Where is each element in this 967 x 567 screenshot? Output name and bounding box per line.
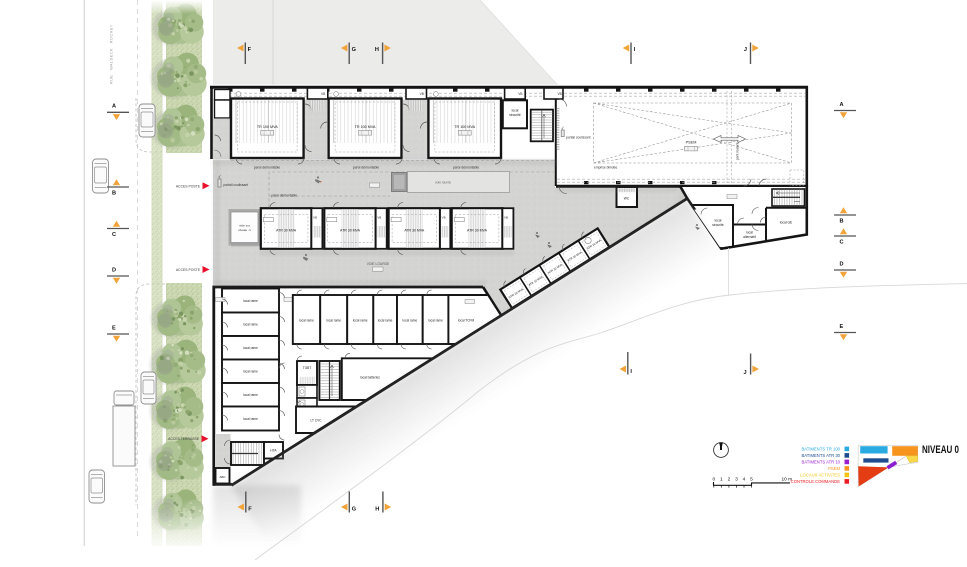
svg-text:ATR 30 MVA: ATR 30 MVA <box>340 229 361 233</box>
svg-text:WC: WC <box>624 197 630 201</box>
svg-text:local rame: local rame <box>428 319 443 323</box>
svg-text:niveau -1: niveau -1 <box>238 228 251 232</box>
svg-text:3: 3 <box>735 476 738 482</box>
svg-text:D: D <box>840 261 844 267</box>
svg-text:E: E <box>112 325 116 331</box>
svg-text:0: 0 <box>712 476 715 482</box>
svg-text:vide sur: vide sur <box>239 224 250 228</box>
svg-text:ATR 30 MVA: ATR 30 MVA <box>404 229 425 233</box>
svg-text:B: B <box>112 191 116 197</box>
svg-text:local rame: local rame <box>243 299 258 303</box>
svg-text:C: C <box>840 240 844 246</box>
svg-text:local rame: local rame <box>243 393 258 397</box>
svg-text:TR 100 MVA: TR 100 MVA <box>257 125 278 129</box>
svg-text:VB: VB <box>313 216 317 220</box>
svg-text:local rame: local rame <box>326 319 341 323</box>
svg-text:ACCES TERRASSE: ACCES TERRASSE <box>168 437 200 441</box>
svg-text:VOIE LOURDE: VOIE LOURDE <box>367 262 390 266</box>
svg-text:BATIMENTS ATR 30: BATIMENTS ATR 30 <box>802 453 841 458</box>
svg-text:B: B <box>840 219 844 225</box>
svg-text:local rame: local rame <box>243 417 258 421</box>
svg-text:PSEM: PSEM <box>686 141 697 145</box>
svg-text:paroi démontable: paroi démontable <box>353 166 379 170</box>
svg-text:H: H <box>375 47 379 53</box>
svg-text:LT CVC: LT CVC <box>310 419 322 423</box>
svg-text:alternatif: alternatif <box>743 235 756 239</box>
svg-text:VB: VB <box>442 216 446 220</box>
svg-text:TR 100 MVA: TR 100 MVA <box>355 125 376 129</box>
svg-text:local rame: local rame <box>243 346 258 350</box>
svg-text:sécurité: sécurité <box>509 113 521 117</box>
svg-text:G: G <box>352 47 356 53</box>
svg-text:A: A <box>112 104 116 110</box>
svg-text:portail coulissant: portail coulissant <box>224 183 249 187</box>
svg-text:HTA: HTA <box>270 449 277 453</box>
svg-text:local TCFM: local TCFM <box>458 319 475 323</box>
svg-text:local rame: local rame <box>403 319 418 323</box>
svg-text:TR 100 MVA: TR 100 MVA <box>454 125 475 129</box>
svg-text:ATR 30 MVA: ATR 30 MVA <box>467 229 488 233</box>
svg-text:1: 1 <box>720 476 723 482</box>
svg-text:5: 5 <box>750 476 753 482</box>
svg-text:BATIMENTS ATR 10: BATIMENTS ATR 10 <box>802 460 841 465</box>
svg-text:local rame: local rame <box>243 323 258 327</box>
svg-text:VB: VB <box>321 92 325 96</box>
svg-text:C: C <box>112 232 116 238</box>
svg-text:paroi démontable: paroi démontable <box>272 193 298 197</box>
svg-text:2: 2 <box>728 476 731 482</box>
svg-text:local: local <box>512 109 519 113</box>
svg-text:local rame: local rame <box>299 319 314 323</box>
svg-text:E: E <box>840 324 844 330</box>
svg-text:VB: VB <box>420 92 424 96</box>
svg-text:4: 4 <box>743 476 746 482</box>
svg-text:VB: VB <box>518 92 522 96</box>
svg-text:VB: VB <box>377 216 381 220</box>
svg-text:local: local <box>746 231 753 235</box>
svg-text:H: H <box>375 507 379 513</box>
svg-text:local rame: local rame <box>243 370 258 374</box>
svg-text:ATR 30 MVA: ATR 30 MVA <box>276 229 297 233</box>
svg-text:VB: VB <box>504 216 508 220</box>
svg-text:voie lourde: voie lourde <box>435 181 451 185</box>
svg-text:ACCES POSTE: ACCES POSTE <box>176 184 201 188</box>
svg-text:VB: VB <box>558 92 562 96</box>
svg-text:J: J <box>744 370 747 376</box>
svg-text:G: G <box>352 507 356 513</box>
svg-text:local batteries: local batteries <box>360 376 380 380</box>
svg-text:sécurité: sécurité <box>712 223 724 227</box>
svg-text:TGBT: TGBT <box>303 366 312 370</box>
svg-text:emprise blindée: emprise blindée <box>594 165 617 169</box>
svg-text:A: A <box>840 102 844 108</box>
svg-text:BATIMENTS TR 100: BATIMENTS TR 100 <box>802 447 841 452</box>
svg-text:CONTROLE COMMANDE: CONTROLE COMMANDE <box>791 479 841 484</box>
svg-text:J: J <box>744 47 747 53</box>
svg-text:ACCES POSTE: ACCES POSTE <box>176 268 201 272</box>
svg-text:PSEM: PSEM <box>828 466 840 471</box>
svg-text:local rame: local rame <box>353 319 368 323</box>
svg-text:F: F <box>248 507 252 513</box>
svg-text:local GE: local GE <box>780 220 793 224</box>
svg-text:paroi démontable: paroi démontable <box>453 166 479 170</box>
svg-text:RUE WALDECK ROCHET: RUE WALDECK ROCHET <box>110 24 114 84</box>
svg-text:NIVEAU 0: NIVEAU 0 <box>922 444 959 456</box>
svg-text:local: local <box>715 219 722 223</box>
svg-text:F: F <box>248 47 252 53</box>
svg-text:ABC: ABC <box>219 475 226 479</box>
svg-text:portail coulissant: portail coulissant <box>566 136 591 140</box>
svg-text:local rame: local rame <box>378 319 393 323</box>
svg-text:LOCAUX ACTIVITES: LOCAUX ACTIVITES <box>800 473 840 478</box>
svg-text:D: D <box>112 267 116 273</box>
svg-text:paroi démontable: paroi démontable <box>254 166 280 170</box>
svg-text:pont roulant: pont roulant <box>736 143 740 160</box>
